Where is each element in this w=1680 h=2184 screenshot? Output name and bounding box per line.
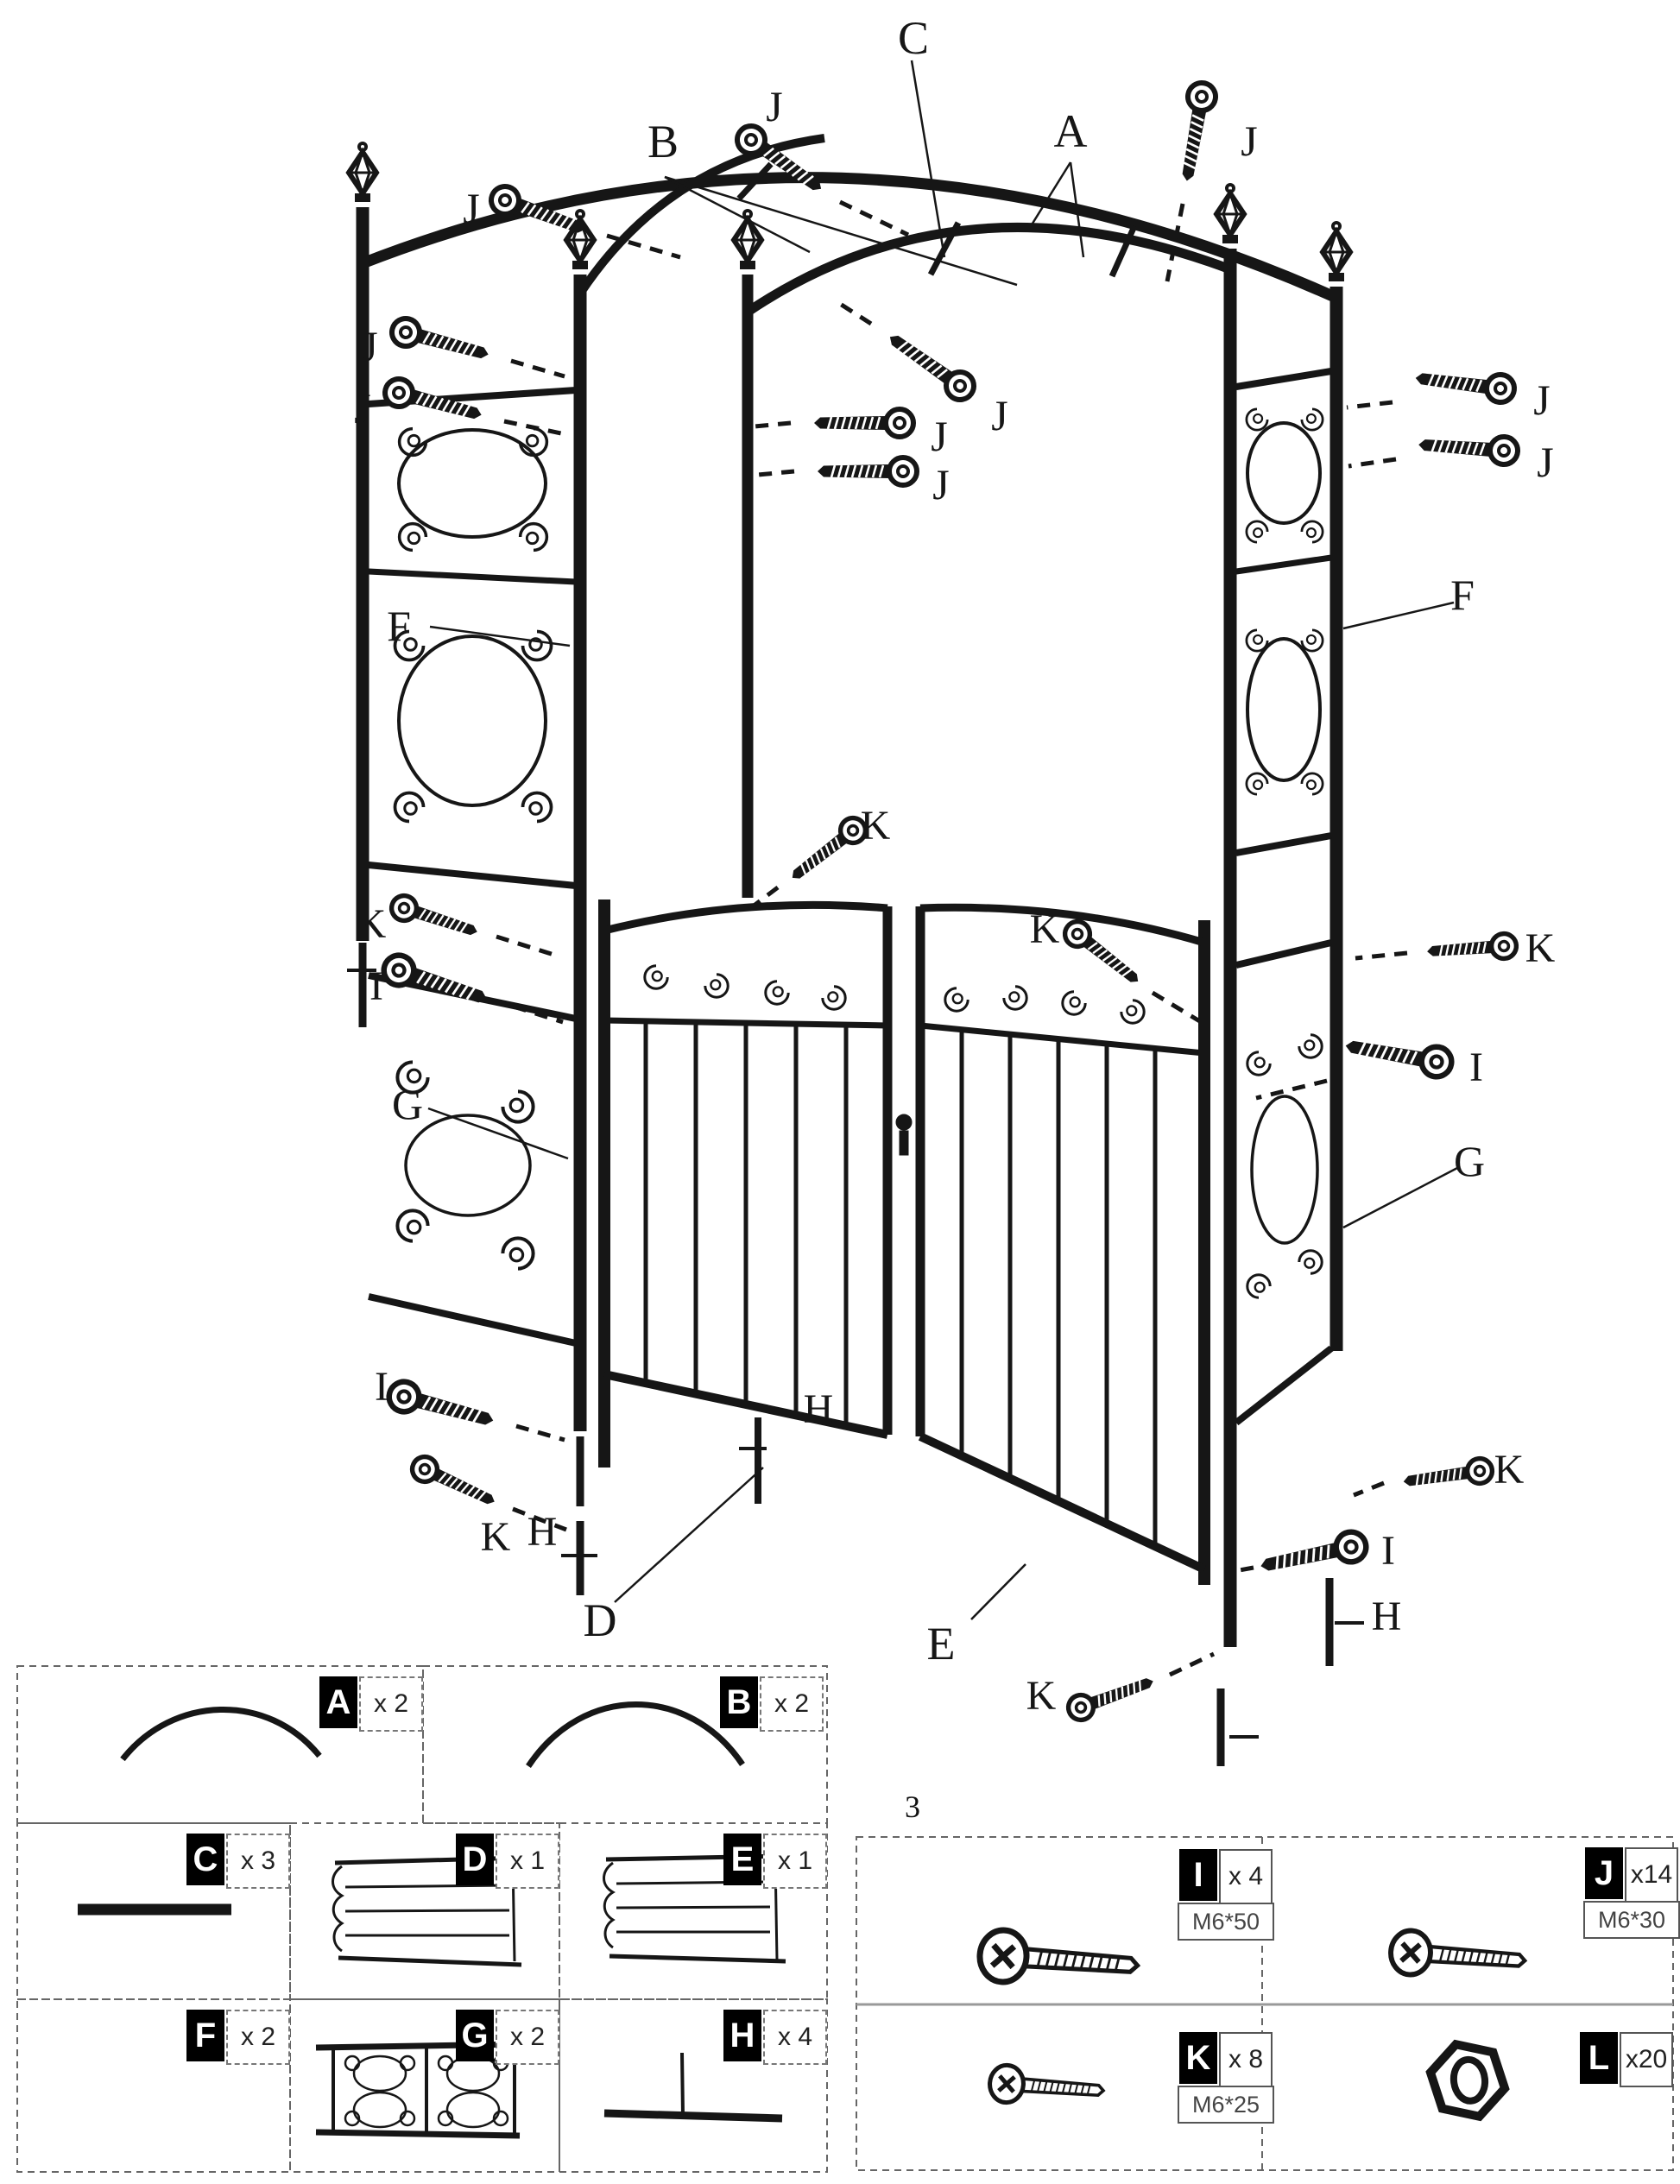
- callout-label-b: B: [647, 116, 679, 167]
- gate-assembly: [604, 899, 1204, 1585]
- hardware-chip-i: I: [1179, 1849, 1217, 1901]
- callout-label-g: G: [392, 1080, 423, 1128]
- page-number-fragment: 3: [905, 1789, 920, 1825]
- callout-label-k: K: [1030, 906, 1060, 952]
- screw-icon: [1065, 1670, 1158, 1723]
- screw-icon: [1426, 933, 1517, 964]
- part-h-stake: [604, 2053, 782, 2118]
- callout-label-j: J: [361, 322, 377, 370]
- screw-icon: [388, 893, 481, 944]
- instruction-sheet: C B A D E F F G G J J J J J J J J J J K …: [0, 0, 1680, 2184]
- screw-icon: [380, 951, 491, 1013]
- part-chip-h: H: [723, 2010, 761, 2061]
- right-lower-panel-g: [1236, 943, 1331, 1423]
- callout-label-k: K: [357, 901, 387, 947]
- finial-icon: [1323, 223, 1350, 281]
- callout-label-k: K: [1026, 1673, 1057, 1719]
- gate-latch: [896, 1114, 912, 1130]
- callout-label-k: K: [1494, 1447, 1525, 1493]
- part-b-arch-segment: [528, 1705, 742, 1767]
- callout-label-j: J: [1241, 117, 1257, 165]
- gate-top-rail: [604, 905, 887, 931]
- screw-icon: [1414, 364, 1516, 404]
- screw-icon: [1418, 431, 1519, 465]
- screw-i-icon: [978, 1928, 1140, 1991]
- gate-top-rail: [920, 907, 1204, 943]
- right-trellis-panel-f: [1236, 371, 1331, 853]
- finial-icon: [349, 143, 376, 202]
- screw-icon: [1173, 80, 1217, 183]
- callout-label-k: K: [481, 1514, 511, 1560]
- part-chip-b: B: [720, 1676, 758, 1728]
- part-count-g: x 2: [496, 2010, 559, 2065]
- finial-icon: [1216, 185, 1244, 243]
- part-chip-c: C: [186, 1834, 224, 1885]
- callout-label-i: I: [375, 1364, 388, 1410]
- screw-icon: [386, 1379, 497, 1436]
- part-count-d: x 1: [496, 1834, 559, 1889]
- part-drawings: [78, 1705, 786, 2137]
- callout-label-j: J: [932, 460, 949, 508]
- hardware-spec-i: M6*50: [1178, 1903, 1274, 1941]
- callout-label-j: J: [991, 391, 1007, 439]
- callout-label-i: I: [1381, 1528, 1395, 1574]
- callout-label-e: E: [927, 1618, 956, 1670]
- screw-icon: [408, 1453, 500, 1513]
- callout-label-c: C: [898, 12, 929, 64]
- callout-label-g: G: [1454, 1137, 1485, 1185]
- callout-label-j: J: [766, 82, 782, 130]
- left-lower-panel-g: [369, 975, 576, 1343]
- part-a-arch-segment: [123, 1709, 319, 1759]
- part-d-gate-panel: [333, 1858, 524, 1965]
- screw-callouts: [380, 80, 1519, 1723]
- callout-label-k: K: [1525, 925, 1556, 971]
- callout-letters-j: J J J J J J J J J J: [354, 82, 1553, 508]
- callout-label-h: H: [1372, 1594, 1402, 1639]
- callout-label-j: J: [354, 384, 370, 432]
- screw-icon: [882, 325, 980, 405]
- hardware-count-i: x 4: [1219, 1849, 1273, 1904]
- part-chip-g: G: [456, 2010, 494, 2061]
- hardware-count-j: x14: [1625, 1847, 1678, 1903]
- callout-label-j: J: [931, 412, 947, 460]
- hardware-count-l: x20: [1620, 2032, 1673, 2087]
- hardware-count-k: x 8: [1219, 2032, 1273, 2087]
- part-count-a: x 2: [359, 1676, 423, 1732]
- gate-latch: [900, 1131, 908, 1155]
- hardware-chip-j: J: [1585, 1847, 1623, 1899]
- callout-label-a: A: [1054, 105, 1088, 157]
- callout-label-d: D: [584, 1594, 617, 1646]
- part-count-f: x 2: [226, 2010, 290, 2065]
- nut-l-icon: [1424, 2041, 1512, 2121]
- hardware-chip-l: L: [1580, 2032, 1618, 2084]
- callout-label-f: F: [387, 602, 411, 650]
- part-count-b: x 2: [760, 1676, 824, 1732]
- ground-stakes: [347, 943, 1364, 1766]
- parts-list-boxes: [17, 1666, 1673, 2172]
- gate-bottom-rail: [920, 1436, 1204, 1569]
- hardware-spec-k: M6*25: [1178, 2086, 1274, 2124]
- callout-label-j: J: [1537, 438, 1553, 486]
- callout-label-h: H: [804, 1386, 834, 1432]
- screw-icon: [1402, 1457, 1494, 1494]
- screw-k-icon: [988, 2064, 1104, 2109]
- callout-label-k: K: [861, 803, 891, 849]
- screw-icon: [1343, 1031, 1454, 1079]
- screw-icon: [818, 458, 917, 485]
- part-count-e: x 1: [763, 1834, 827, 1889]
- screw-icon: [814, 409, 913, 437]
- hardware-chip-k: K: [1179, 2032, 1217, 2084]
- callout-label-j: J: [463, 184, 479, 232]
- callout-letters-ik: K K K K K K K I I I I H H H: [357, 803, 1556, 1719]
- part-chip-e: E: [723, 1834, 761, 1885]
- callout-label-h: H: [527, 1509, 558, 1555]
- part-chip-f: F: [186, 2010, 224, 2061]
- screw-icon: [388, 315, 491, 368]
- back-arch-rib: [749, 227, 1230, 311]
- screw-icon: [1258, 1530, 1369, 1581]
- screw-icon: [382, 376, 484, 428]
- hardware-spec-j: M6*30: [1583, 1901, 1680, 1939]
- screw-j-icon: [1389, 1929, 1526, 1983]
- part-chip-a: A: [319, 1676, 357, 1728]
- callout-label-f: F: [1450, 571, 1475, 619]
- part-chip-d: D: [456, 1834, 494, 1885]
- part-count-c: x 3: [226, 1834, 290, 1889]
- callout-label-j: J: [1533, 376, 1550, 424]
- screw-icon: [785, 813, 870, 887]
- callout-letters-fg: F F G G: [387, 571, 1485, 1185]
- part-count-h: x 4: [763, 2010, 827, 2065]
- callout-label-i: I: [1469, 1045, 1483, 1090]
- callout-label-i: I: [369, 963, 383, 1009]
